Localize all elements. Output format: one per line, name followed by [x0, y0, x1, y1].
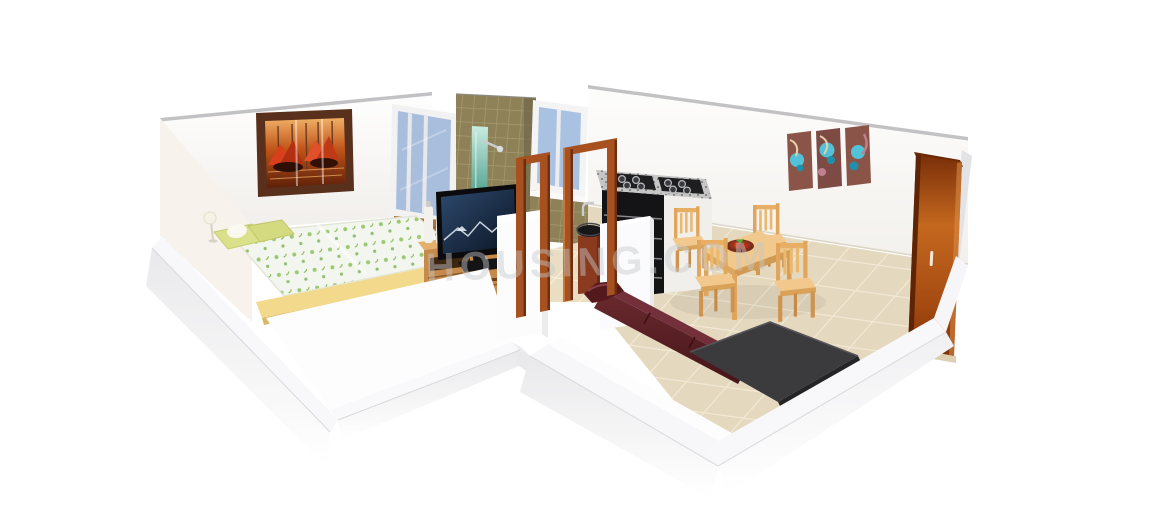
- gondola-painting: [256, 109, 354, 197]
- apartment-3d-scene: HOUSING.COM: [0, 0, 1160, 508]
- wall-art-triptych: [787, 125, 871, 191]
- floorplan-render: HOUSING.COM: [0, 0, 1160, 508]
